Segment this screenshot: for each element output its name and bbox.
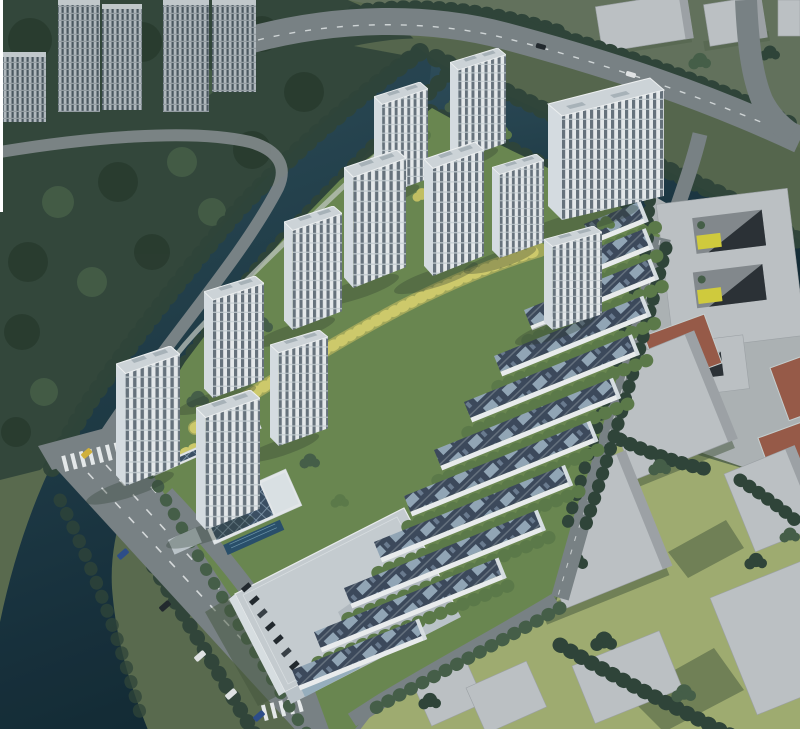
aerial-masterplan-rendering <box>0 0 800 735</box>
left-margin <box>0 0 3 212</box>
rendering-canvas <box>0 0 800 735</box>
bottom-margin <box>0 729 800 735</box>
tone-overlay <box>0 0 800 735</box>
